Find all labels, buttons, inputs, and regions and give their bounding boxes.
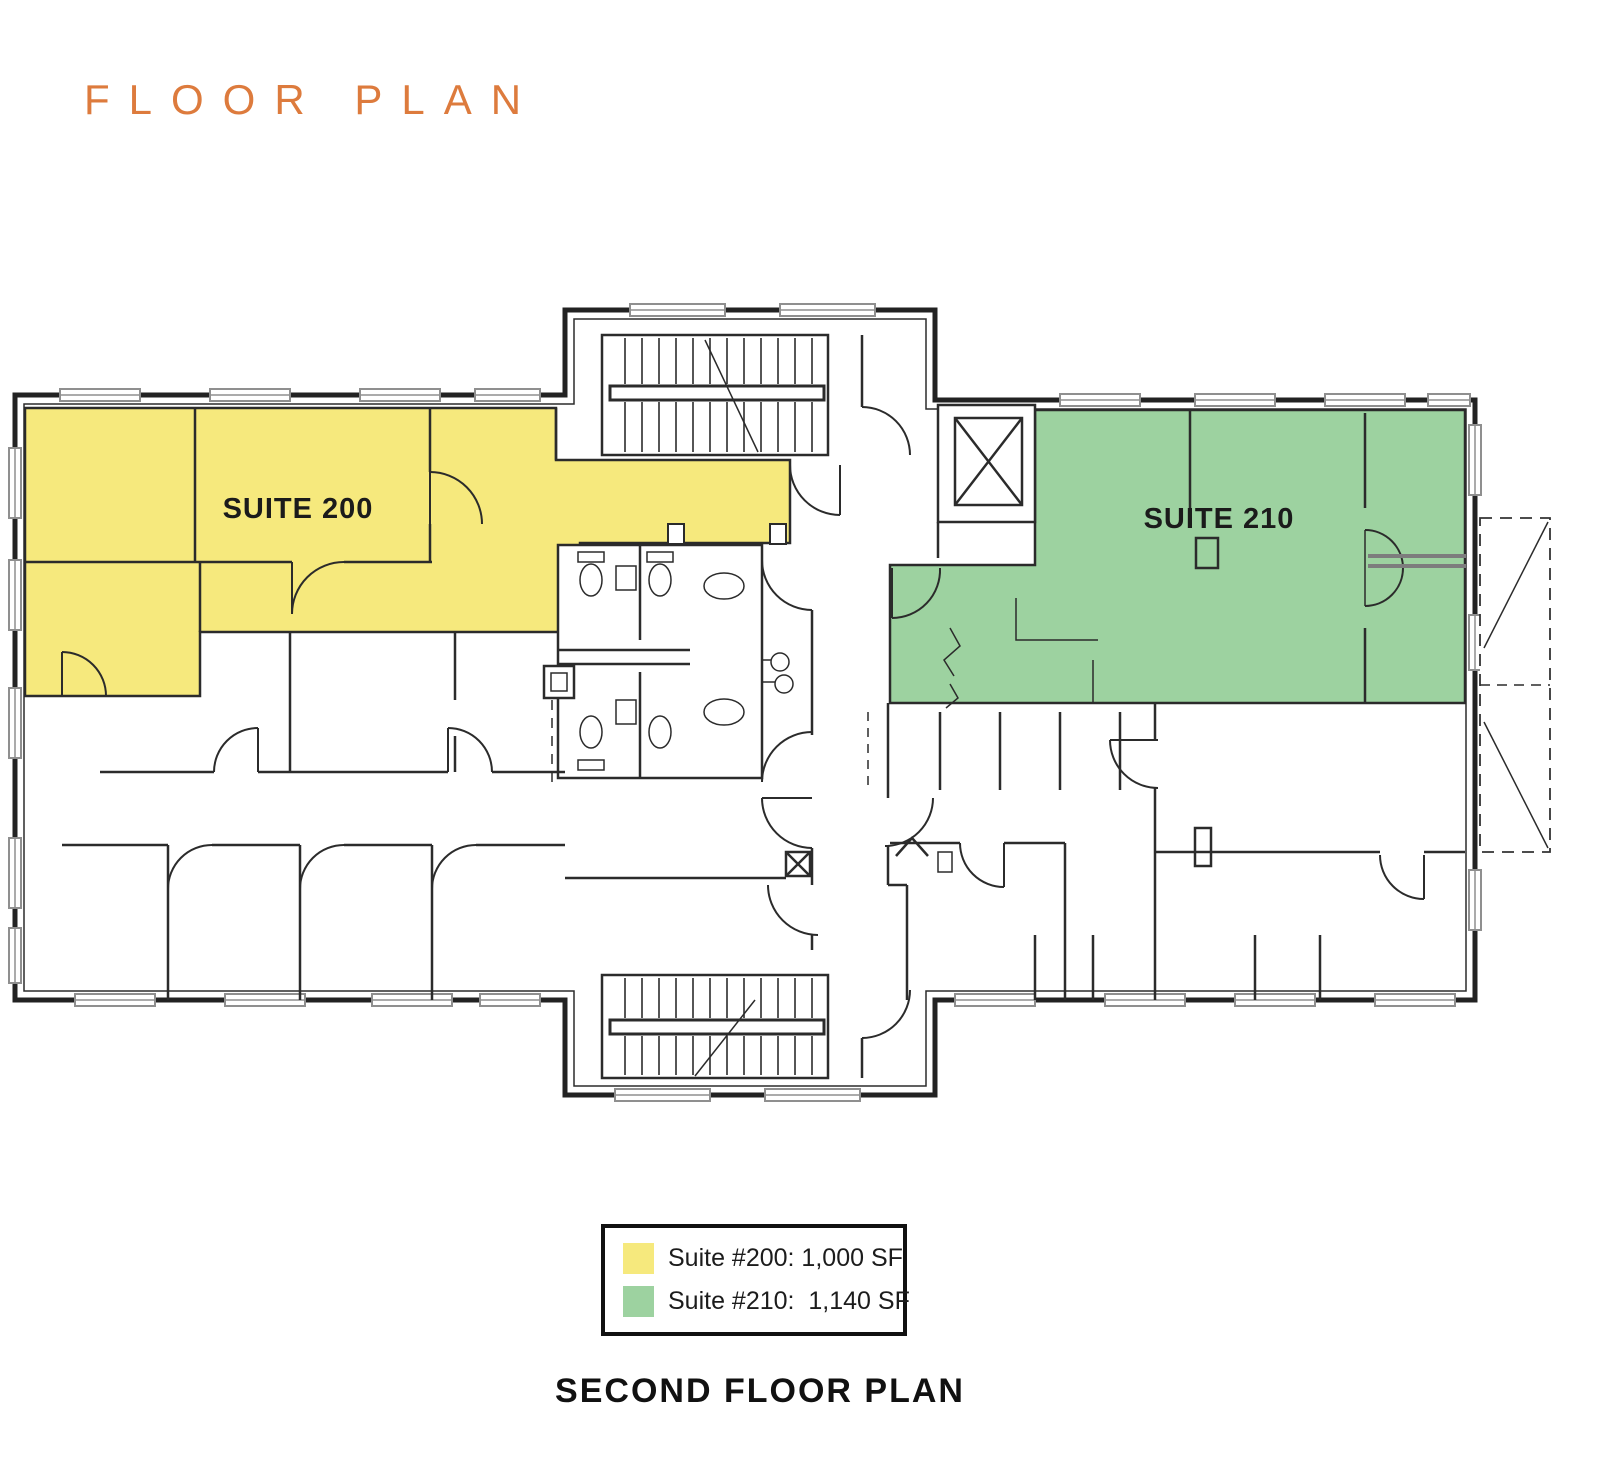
suite-210-swatch (623, 1286, 654, 1317)
suite-210-label: SUITE 210 (1144, 503, 1295, 535)
fountain-icon (771, 653, 789, 671)
floor-plan-page: FLOOR PLAN (0, 0, 1600, 1476)
suite-200-swatch (623, 1243, 654, 1274)
roof-hatch-icon (896, 838, 928, 856)
suite-200-label: SUITE 200 (223, 493, 374, 525)
fountain-icon (775, 675, 793, 693)
legend-label: Suite #210: 1,140 SF (668, 1287, 910, 1316)
legend-box: Suite #200: 1,000 SF Suite #210: 1,140 S… (601, 1224, 907, 1336)
restroom-core (544, 524, 812, 788)
legend-item-suite-210: Suite #210: 1,140 SF (623, 1286, 903, 1317)
balcony (1480, 518, 1550, 852)
right-wing-offices (885, 703, 1465, 1000)
stairwell-top (602, 335, 910, 455)
fixture-icon (938, 852, 952, 872)
stairwell-bottom (602, 975, 910, 1078)
plan-caption: SECOND FLOOR PLAN (400, 1372, 1120, 1411)
legend-label: Suite #200: 1,000 SF (668, 1244, 903, 1273)
legend-item-suite-200: Suite #200: 1,000 SF (623, 1243, 903, 1274)
elevator (938, 405, 1035, 558)
column-marker (1195, 828, 1211, 866)
